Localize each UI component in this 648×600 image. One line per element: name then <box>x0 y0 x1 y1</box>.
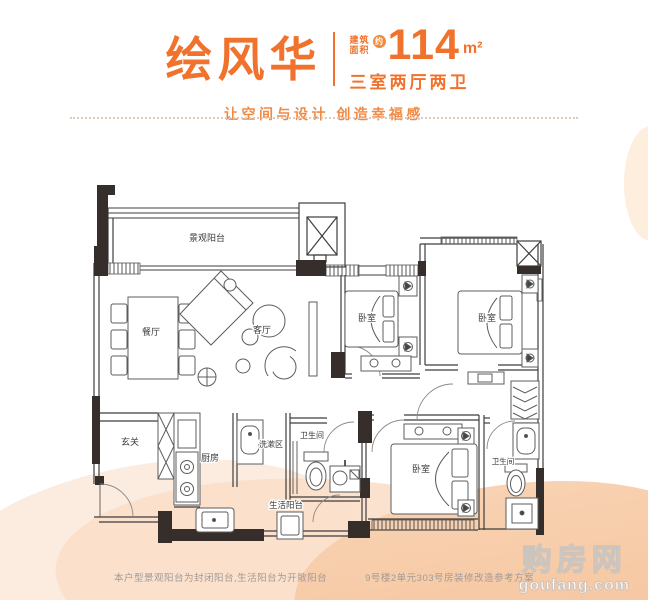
tagline: 让空间与设计 创造幸福感 <box>0 104 648 124</box>
toilet-main <box>304 452 328 490</box>
label-bathroom-main: 卫生间 <box>300 430 324 440</box>
label-life-balcony: 生活阳台 <box>269 500 303 510</box>
area-block: 建筑 面积 约 114 m² 三室两厅两卫 <box>350 26 483 93</box>
vanity-main <box>330 460 360 492</box>
area-value: 114 <box>388 26 460 65</box>
bed-mid <box>345 276 417 371</box>
wave-shape-edge <box>624 126 648 241</box>
page-title: 绘风华 <box>166 36 322 83</box>
label-dining: 餐厅 <box>142 326 160 337</box>
laundry-sink <box>196 508 234 532</box>
footer-note-left: 本户型景观阳台为封闭阳台,生活阳台为开敞阳台 <box>114 570 327 584</box>
label-kitchen: 厨房 <box>201 452 219 463</box>
bed-bottom <box>391 424 477 516</box>
label-bedroom-mid: 卧室 <box>358 312 376 323</box>
watermark: 购房网 goufang.com <box>519 544 630 595</box>
furniture <box>111 271 539 539</box>
area-unit: m² <box>463 40 483 58</box>
area-label-line1: 建筑 <box>350 35 370 45</box>
shower-second <box>506 498 538 529</box>
label-bedroom-right: 卧室 <box>478 312 496 323</box>
watermark-logo: 购房网 <box>519 544 630 577</box>
label-bedroom-bottom: 卧室 <box>412 463 430 474</box>
tv-cabinet <box>309 302 317 376</box>
dining-table <box>111 297 195 379</box>
wardrobe-closet <box>511 381 539 419</box>
entry-door-arc <box>100 484 133 517</box>
title-divider <box>333 32 335 86</box>
washing-machine <box>277 512 303 539</box>
armchair <box>236 347 296 379</box>
header: 绘风华 建筑 面积 约 114 m² 三室两厅两卫 让空间与设计 创造幸福感 <box>0 26 648 124</box>
kitchen-cabinets <box>158 413 200 505</box>
footer-note-right: 9号楼2单元303号房装修改造参考方案 <box>365 570 534 584</box>
floorplan-drawing: 景观阳台 餐厅 客厅 卧室 卧室 玄关 厨房 洗漱区 卫生间 生活阳台 卧室 卫… <box>88 182 550 544</box>
dotted-separator <box>70 117 578 119</box>
toilet-second <box>505 464 527 496</box>
watermark-domain: goufang.com <box>519 577 630 595</box>
bathroom-main-door-arc <box>324 422 354 452</box>
label-entry: 玄关 <box>121 436 139 447</box>
label-wash-area: 洗漱区 <box>259 439 283 449</box>
floor-lamp <box>198 368 216 386</box>
area-label-line2: 面积 <box>350 45 370 55</box>
vanity-second <box>513 423 539 459</box>
area-label: 建筑 面积 <box>350 35 370 55</box>
label-living: 客厅 <box>253 324 271 335</box>
label-view-balcony: 景观阳台 <box>189 232 225 243</box>
bed-right <box>458 275 538 384</box>
life-balcony-door-arc <box>313 495 340 522</box>
label-bathroom-second: 卫生间 <box>492 456 515 466</box>
floorplan-poster: 绘风华 建筑 面积 约 114 m² 三室两厅两卫 让空间与设计 创造幸福感 <box>0 0 648 600</box>
bathroom-second-door-arc <box>487 421 515 449</box>
approx-badge: 约 <box>373 35 386 48</box>
layout-type: 三室两厅两卫 <box>350 68 483 93</box>
